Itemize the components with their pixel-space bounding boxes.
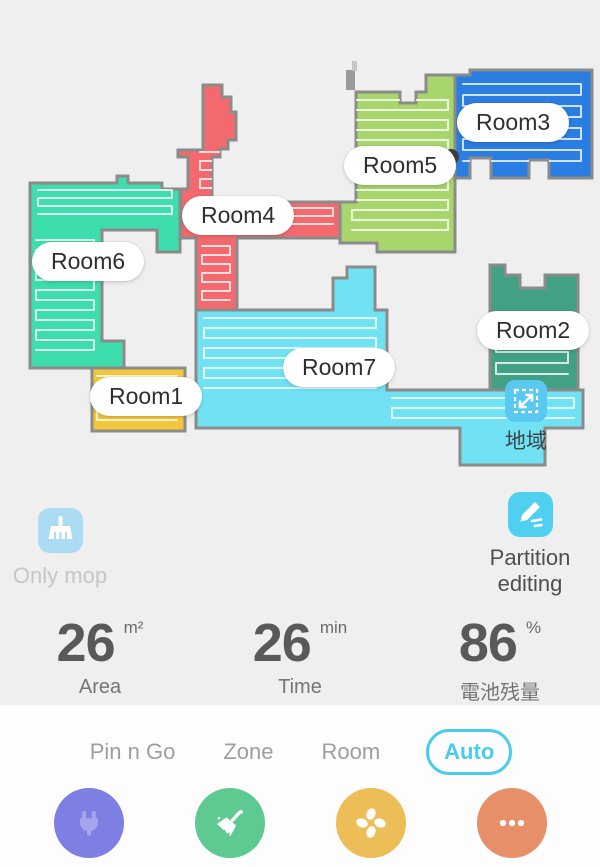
only-mop-label: Only mop <box>5 563 115 589</box>
tab-zone[interactable]: Zone <box>221 731 275 773</box>
room-label-pill-room5[interactable]: Room5 <box>344 146 456 185</box>
region-tool: 地域 <box>503 380 549 455</box>
room-label-pill-room7[interactable]: Room7 <box>283 348 395 387</box>
battery-value: 86 <box>459 613 517 673</box>
dock-wall-fragment <box>346 70 355 90</box>
mop-icon <box>38 508 83 553</box>
room-label-pill-room1[interactable]: Room1 <box>90 377 202 416</box>
fan-speed-button[interactable] <box>336 788 406 858</box>
fan-icon <box>352 804 390 842</box>
plug-icon <box>70 804 108 842</box>
stat-battery: 86% 電池残量 <box>400 612 600 705</box>
tab-room[interactable]: Room <box>319 731 382 773</box>
bottom-bar: Pin n Go Zone Room Auto <box>0 705 600 867</box>
stat-time: 26min Time <box>200 612 400 705</box>
partition-editing-button[interactable]: Partition editing <box>483 492 577 597</box>
region-select-button[interactable] <box>505 380 547 422</box>
area-value: 26 <box>57 613 115 673</box>
room-label-pill-room4[interactable]: Room4 <box>182 196 294 235</box>
floor-map[interactable]: Room4Room5Room3Room6Room7Room2Room1 地域 <box>0 0 600 470</box>
area-label: Area <box>0 676 200 699</box>
time-unit: min <box>320 618 347 637</box>
pencil-icon <box>508 492 553 537</box>
tab-pin-n-go[interactable]: Pin n Go <box>88 731 178 773</box>
time-value: 26 <box>253 613 311 673</box>
ellipsis-icon <box>493 804 531 842</box>
stat-area: 26m² Area <box>0 612 200 705</box>
room-label-pill-room3[interactable]: Room3 <box>457 103 569 142</box>
region-label: 地域 <box>503 425 549 455</box>
action-buttons-row <box>0 788 600 858</box>
stats-row: 26m² Area 26min Time 86% 電池残量 <box>0 612 600 705</box>
robot-vacuum-map-screen: Room4Room5Room3Room6Room7Room2Room1 地域 <box>0 0 600 867</box>
tab-auto[interactable]: Auto <box>426 729 512 775</box>
region-select-icon <box>505 380 547 422</box>
clean-trace <box>202 246 230 300</box>
room-label-pill-room2[interactable]: Room2 <box>477 311 589 350</box>
broom-icon <box>211 804 249 842</box>
area-unit: m² <box>124 618 144 637</box>
mode-tabs: Pin n Go Zone Room Auto <box>0 729 600 775</box>
clean-button[interactable] <box>195 788 265 858</box>
more-button[interactable] <box>477 788 547 858</box>
battery-unit: % <box>526 618 541 637</box>
dock-button[interactable] <box>54 788 124 858</box>
room-label-pill-room6[interactable]: Room6 <box>32 242 144 281</box>
time-label: Time <box>200 676 400 699</box>
battery-label: 電池残量 <box>400 676 600 705</box>
dock-wall-fragment-small <box>352 61 357 71</box>
partition-editing-label: Partition editing <box>483 545 577 597</box>
only-mop-button[interactable]: Only mop <box>5 508 115 589</box>
